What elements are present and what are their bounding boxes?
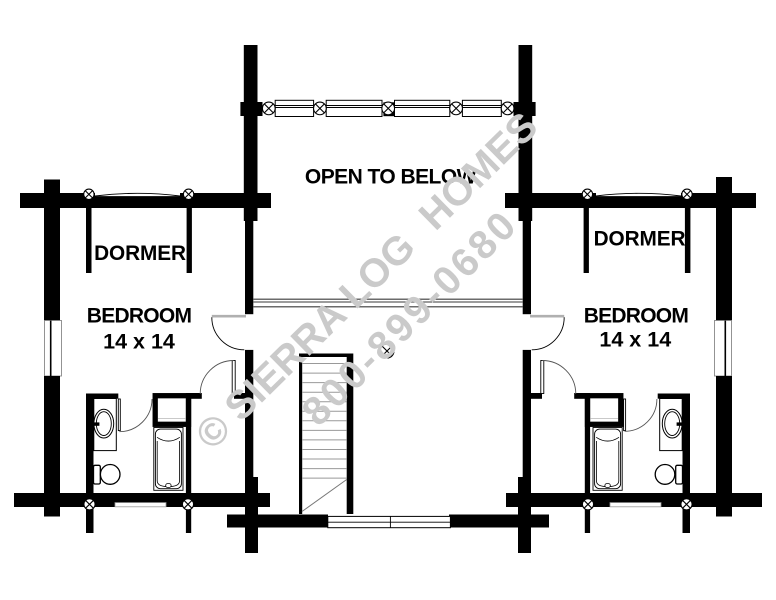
svg-text:BEDROOM: BEDROOM	[584, 304, 689, 327]
svg-text:BEDROOM: BEDROOM	[87, 304, 192, 327]
svg-text:DORMER: DORMER	[594, 227, 686, 250]
svg-text:DORMER: DORMER	[94, 242, 186, 265]
svg-text:14 x 14: 14 x 14	[103, 329, 175, 353]
svg-text:14 x 14: 14 x 14	[599, 328, 671, 352]
